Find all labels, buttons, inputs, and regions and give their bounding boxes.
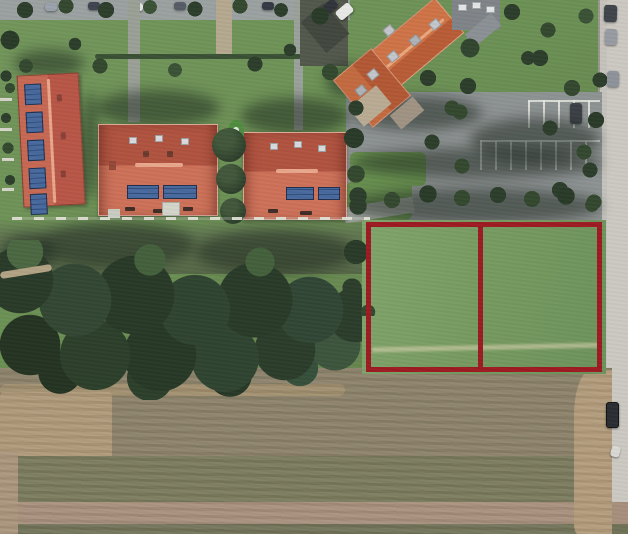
solar-panel [26,111,44,133]
rowhouse-ridge [47,79,56,203]
front-garden-trees [60,34,360,86]
roof-window [167,151,173,157]
rowhouse-building [17,72,86,207]
road-car-3 [607,71,620,87]
road-car-4 [606,402,619,428]
skylight [318,145,326,152]
skylight [181,138,189,145]
shadow-rowhouse-right [82,92,98,200]
house-b-ridge [276,169,318,173]
tree-between-houses [212,128,246,162]
street-tree-row-above-plots [344,182,604,224]
roof-window [57,94,62,101]
white-shed [162,202,180,216]
roof-window [61,132,66,139]
roof-window [143,151,149,157]
tree-grove-canopy [0,240,390,400]
solar-array [127,185,159,199]
aerial-photo: Aerial satellite photo of a residential … [0,0,628,534]
skylight [270,143,278,150]
solar-panel [27,139,45,161]
eave-vent [300,211,312,215]
top-street-trees [0,0,350,36]
eave-vent [183,207,193,211]
skylight [129,137,137,144]
solar-array [286,187,314,200]
house-b [243,132,347,220]
solar-array [163,185,197,199]
skylight [155,135,163,142]
roof-window [61,170,66,177]
skylight [458,4,467,11]
house-a-ridge [135,163,183,167]
eave-vent [268,209,278,213]
shadow-house-b [241,98,349,134]
property-fence-line [12,217,370,220]
solar-array [318,187,340,200]
plot-annotation-outline [366,222,602,372]
eave-vent [125,207,135,211]
solar-panel [28,167,46,189]
plot-annotation-divider [478,222,483,372]
tree-between-houses [216,164,246,194]
left-edge-trees [0,22,44,88]
solar-panel [30,193,48,215]
road-car-1 [604,5,618,22]
house-a [98,124,218,216]
skylight [294,141,302,148]
tree-between-houses [220,198,246,224]
road-car-2 [605,29,618,45]
skylight [472,2,481,9]
chimney [109,161,116,170]
shadow-house-a [96,90,220,126]
left-garden-bushes [0,80,20,200]
